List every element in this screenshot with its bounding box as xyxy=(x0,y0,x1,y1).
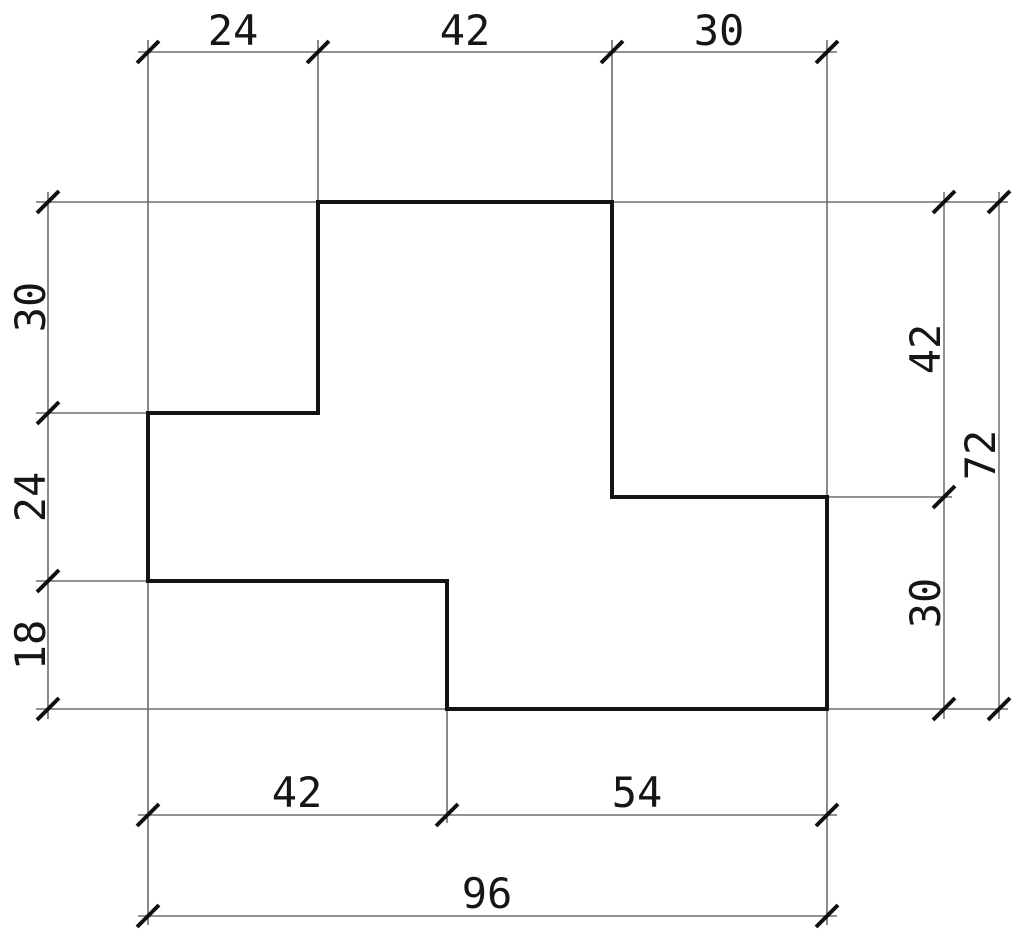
technical-drawing: 24 42 30 30 24 18 42 30 72 42 54 96 xyxy=(0,0,1024,934)
drawing-canvas: 24 42 30 30 24 18 42 30 72 42 54 96 xyxy=(0,0,1024,934)
dim-label-right-inner-1: 42 xyxy=(901,324,950,375)
dim-label-left-1: 30 xyxy=(6,282,55,333)
dim-label-left-2: 24 xyxy=(6,472,55,523)
dim-label-top-3: 30 xyxy=(694,6,745,55)
dim-label-bottom-inner-1: 42 xyxy=(272,768,323,817)
part-outline xyxy=(148,202,827,709)
dim-label-top-1: 24 xyxy=(208,6,259,55)
dim-label-right-outer: 72 xyxy=(956,430,1005,481)
dim-label-bottom-inner-2: 54 xyxy=(612,768,663,817)
dim-label-bottom-outer: 96 xyxy=(462,869,513,918)
dim-label-top-2: 42 xyxy=(440,6,491,55)
dim-label-left-3: 18 xyxy=(6,620,55,671)
dim-label-right-inner-2: 30 xyxy=(901,578,950,629)
